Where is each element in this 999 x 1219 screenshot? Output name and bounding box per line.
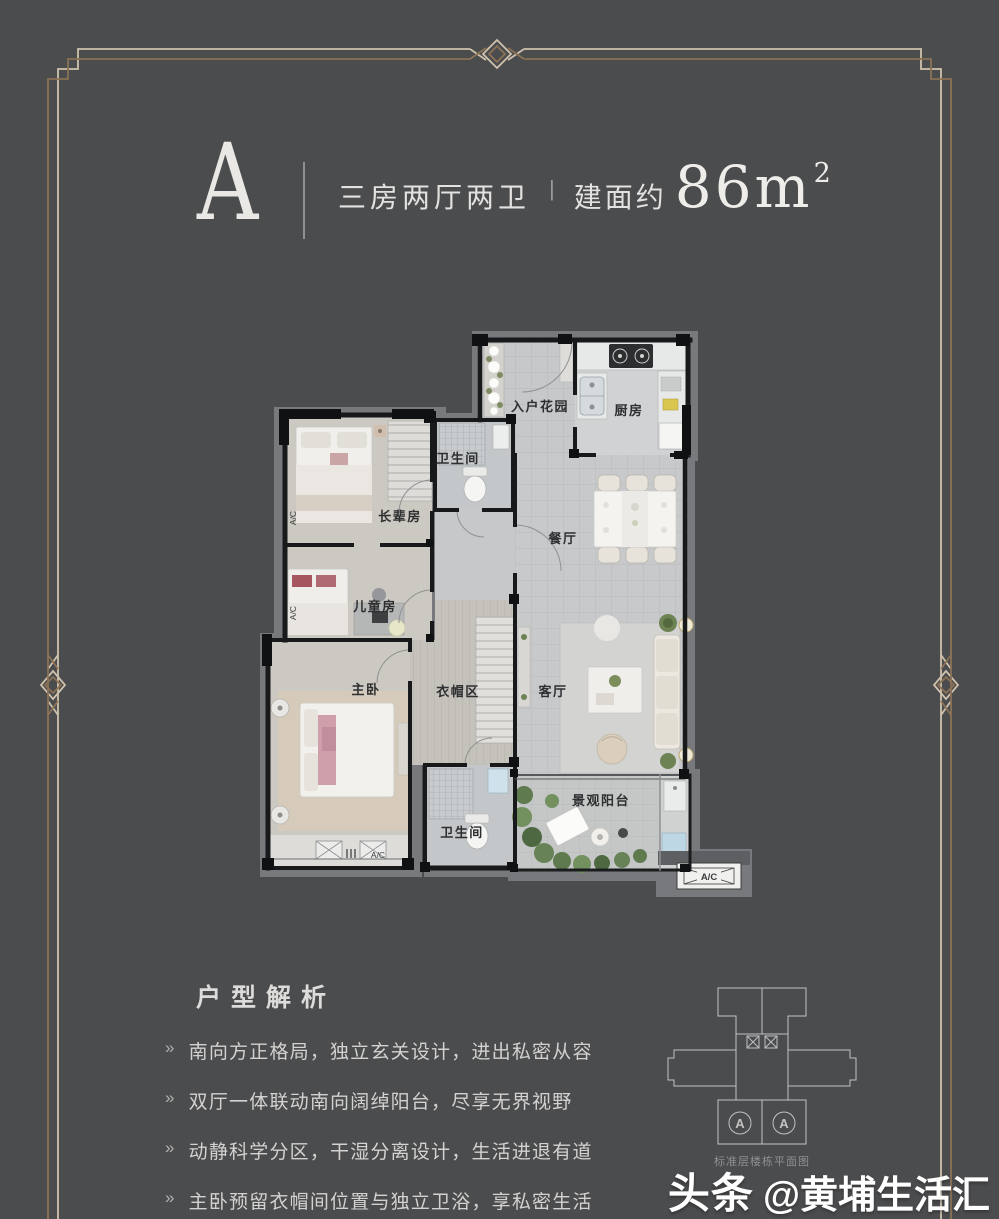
analysis-item: » 主卧预留衣帽间位置与独立卫浴，享私密生活	[165, 1187, 705, 1214]
analysis-item: » 动静科学分区，干湿分离设计，生活进退有道	[165, 1137, 705, 1164]
chevron-bullet-icon: »	[165, 1087, 176, 1109]
watermark: 头条 @黄埔生活汇	[668, 1160, 990, 1219]
room-label-dining: 餐厅	[547, 531, 577, 546]
floorplan-image: 入户花园 厨房 卫生间 长辈房 餐厅 儿童房 主卧 衣帽区 客厅 卫生间 景观阳…	[260, 325, 760, 925]
watermark-brand: 头条	[668, 1160, 754, 1219]
ac-label-children: A/C	[288, 606, 298, 620]
analysis-section: 户型解析 » 南向方正格局，独立玄关设计，进出私密从容 » 双厅一体联动南向阔绰…	[165, 978, 705, 1214]
analysis-item: » 双厅一体联动南向阔绰阳台，尽享无界视野	[165, 1087, 705, 1114]
poster-page: A 三房两厅两卫 | 建面约 86m 2	[0, 0, 999, 1219]
header-separator: |	[549, 176, 555, 202]
analysis-item: » 南向方正格局，独立玄关设计，进出私密从容	[165, 1037, 705, 1064]
room-label-master-bedroom: 主卧	[351, 682, 380, 697]
area-number: 86m	[675, 158, 813, 216]
chevron-bullet-icon: »	[165, 1187, 176, 1209]
ac-label-elder: A/C	[288, 511, 298, 525]
room-label-kitchen: 厨房	[614, 403, 643, 418]
analysis-item-text: 主卧预留衣帽间位置与独立卫浴，享私密生活	[189, 1187, 593, 1214]
unit-letter-logo: A	[197, 130, 258, 236]
room-label-cloak-area: 衣帽区	[436, 684, 480, 699]
room-label-children-room: 儿童房	[352, 599, 397, 614]
room-label-bath-bottom: 卫生间	[440, 825, 484, 840]
analysis-item-text: 动静科学分区，干湿分离设计，生活进退有道	[189, 1137, 593, 1164]
chevron-bullet-icon: »	[165, 1037, 176, 1059]
living-room-furniture	[560, 614, 693, 773]
keyplan-unit-a-marker: A	[779, 1116, 789, 1131]
analysis-title: 户型解析	[196, 978, 705, 1014]
room-label-elder-room: 长辈房	[378, 509, 422, 524]
keyplan-unit-a-marker: A	[735, 1116, 745, 1131]
watermark-handle: @黄埔生活汇	[763, 1164, 990, 1219]
analysis-item-text: 双厅一体联动南向阔绰阳台，尽享无界视野	[189, 1087, 573, 1114]
building-keyplan: A A	[660, 982, 864, 1152]
dining-set	[594, 475, 676, 563]
layout-text: 三房两厅两卫	[338, 176, 530, 216]
area-exponent: 2	[814, 158, 831, 189]
room-label-entry-garden: 入户花园	[511, 399, 569, 414]
chevron-bullet-icon: »	[165, 1137, 176, 1159]
room-label-living-room: 客厅	[538, 684, 567, 699]
header-title: 三房两厅两卫 | 建面约 86m 2	[338, 158, 830, 216]
analysis-item-text: 南向方正格局，独立玄关设计，进出私密从容	[189, 1037, 593, 1064]
area-label: 建面约	[574, 176, 667, 216]
logo-divider	[303, 162, 305, 239]
ac-label-master: A/C	[371, 850, 385, 860]
room-label-bath-top: 卫生间	[436, 451, 480, 466]
ac-label-outdoor: A/C	[701, 872, 718, 883]
room-label-balcony: 景观阳台	[572, 793, 630, 808]
